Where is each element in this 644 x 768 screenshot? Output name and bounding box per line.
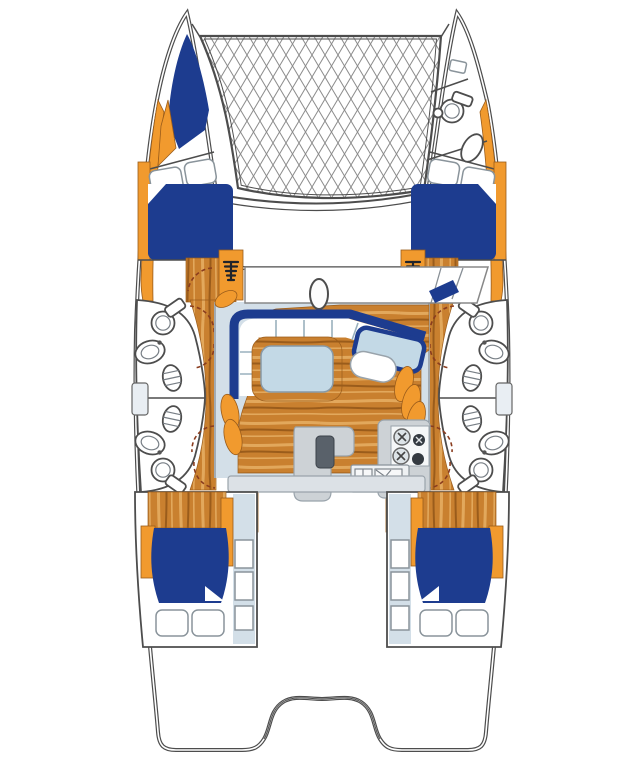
catamaran-floorplan	[0, 0, 644, 768]
saloon-aft-sill	[228, 476, 425, 492]
coachroof-front	[245, 267, 488, 309]
oven-icon	[316, 436, 334, 468]
trampoline	[192, 24, 449, 198]
floorplan-canvas	[0, 0, 644, 768]
saloon-table	[252, 337, 342, 401]
starboard-aft-cabin	[387, 492, 509, 647]
port-aft-cabin	[135, 492, 257, 647]
mast-step	[310, 279, 328, 309]
stove-icon	[391, 426, 429, 466]
basin-icon	[434, 109, 443, 118]
